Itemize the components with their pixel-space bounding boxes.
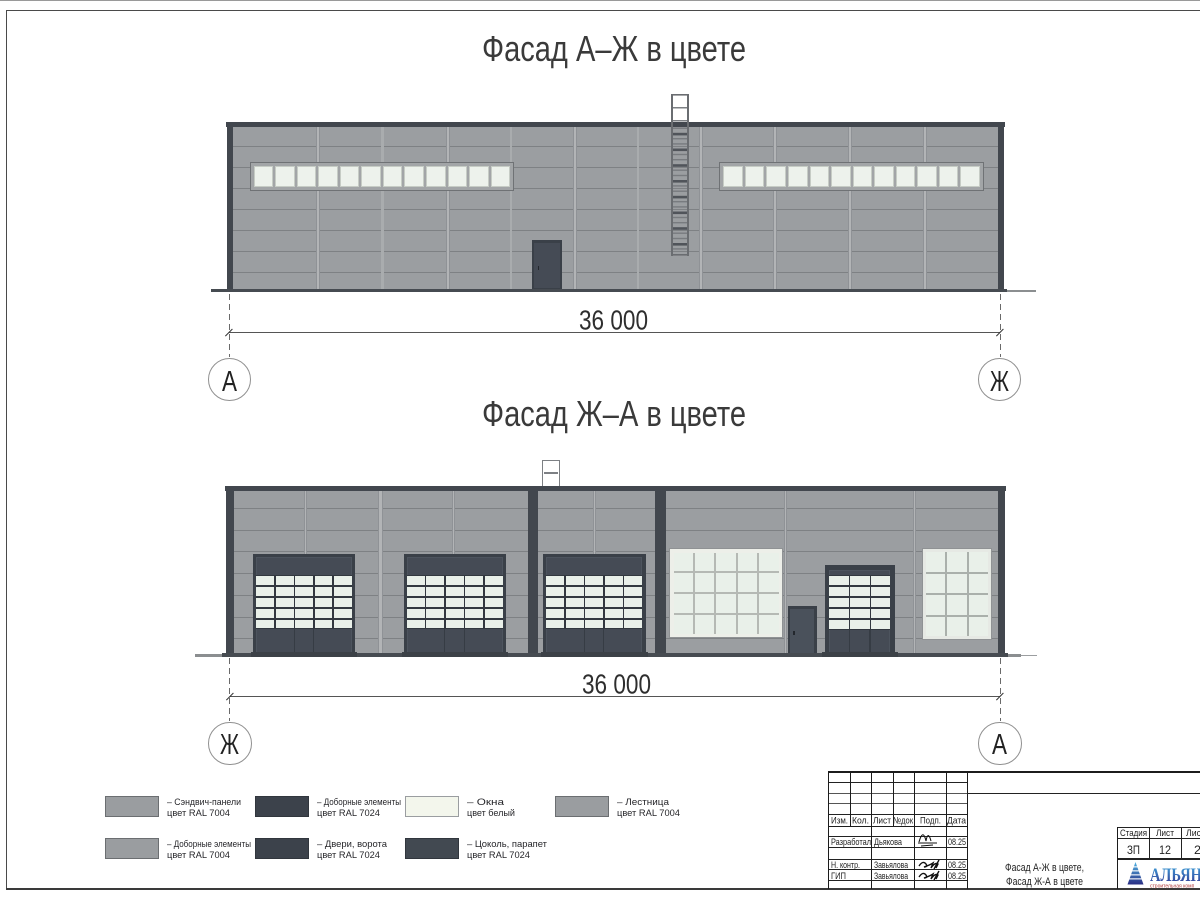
svg-text:ГИП: ГИП: [831, 871, 846, 881]
svg-text:Завьялова: Завьялова: [874, 871, 909, 881]
svg-text:цвет RAL 7024: цвет RAL 7024: [317, 808, 380, 818]
svg-text:Разработал: Разработал: [831, 837, 871, 847]
svg-text:А: А: [222, 365, 238, 397]
svg-text:цвет RAL 7004: цвет RAL 7004: [617, 808, 680, 818]
svg-text:цвет RAL 7024: цвет RAL 7024: [467, 850, 530, 860]
svg-text:2: 2: [1194, 845, 1200, 857]
svg-text:цвет белый: цвет белый: [467, 808, 515, 818]
svg-text:Дьякова: Дьякова: [874, 837, 903, 847]
svg-text:цвет RAL 7004: цвет RAL 7004: [167, 808, 230, 818]
svg-text:Ж: Ж: [220, 729, 239, 761]
svg-text:12: 12: [1159, 845, 1171, 857]
svg-text:36 000: 36 000: [582, 668, 651, 699]
svg-text:Стадия: Стадия: [1120, 828, 1147, 838]
svg-text:строительная комп: строительная комп: [1150, 883, 1195, 889]
svg-text:Фасад Ж–А в цвете: Фасад Ж–А в цвете: [482, 393, 746, 434]
svg-text:цвет RAL 7004: цвет RAL 7004: [167, 850, 230, 860]
svg-text:Ж: Ж: [990, 365, 1009, 397]
svg-text:А: А: [992, 729, 1008, 761]
svg-text:цвет RAL 7024: цвет RAL 7024: [317, 850, 380, 860]
svg-text:Дата: Дата: [947, 815, 967, 826]
svg-text:ЗП: ЗП: [1127, 845, 1140, 857]
svg-text:Фасад Ж-А в цвете: Фасад Ж-А в цвете: [1006, 876, 1083, 888]
svg-text:08.25: 08.25: [948, 871, 966, 881]
svg-text:36 000: 36 000: [579, 305, 648, 336]
svg-text:Фасад А–Ж в цвете: Фасад А–Ж в цвете: [482, 28, 746, 69]
svg-text:Лист: Лист: [1156, 828, 1175, 838]
svg-text:08.25: 08.25: [948, 837, 966, 847]
svg-text:Лис: Лис: [1186, 828, 1200, 838]
